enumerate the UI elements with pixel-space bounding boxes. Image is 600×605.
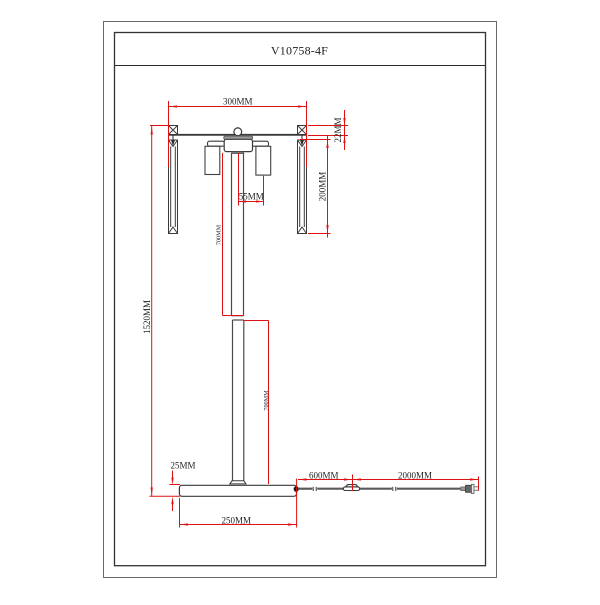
svg-text:300MM: 300MM bbox=[223, 96, 253, 106]
svg-text:25MM: 25MM bbox=[170, 461, 195, 471]
svg-text:1520MM: 1520MM bbox=[142, 300, 152, 334]
svg-text:2000MM: 2000MM bbox=[398, 470, 432, 480]
svg-text:22MM: 22MM bbox=[333, 117, 343, 142]
svg-text:700MM: 700MM bbox=[263, 390, 270, 411]
svg-text:600MM: 600MM bbox=[309, 470, 339, 480]
svg-text:700MM: 700MM bbox=[216, 224, 223, 245]
svg-text:200MM: 200MM bbox=[318, 172, 328, 202]
svg-text:55MM: 55MM bbox=[239, 191, 264, 201]
svg-text:V10758-4F: V10758-4F bbox=[271, 44, 328, 58]
svg-text:250MM: 250MM bbox=[222, 516, 252, 526]
